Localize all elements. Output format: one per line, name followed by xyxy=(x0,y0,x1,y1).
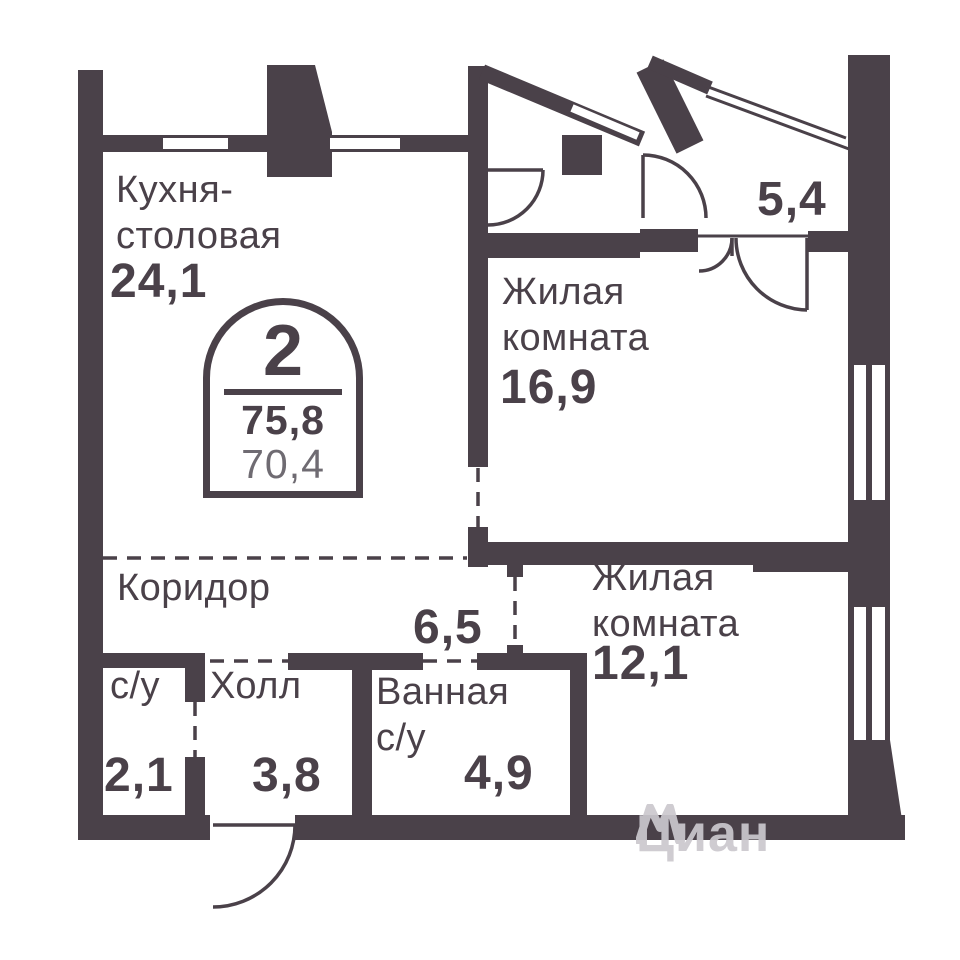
wall-bottom-left xyxy=(78,815,210,840)
room-label-corridor: Коридор xyxy=(117,566,271,612)
wall-balcony-sill-mid xyxy=(640,229,698,252)
wall-divider-upper xyxy=(468,66,488,467)
window-living1-a xyxy=(854,365,866,500)
shaft-box xyxy=(562,135,602,175)
wall-balcony-sill-left xyxy=(468,233,640,258)
wall-mid-step xyxy=(753,542,850,572)
wall-stub-upper xyxy=(507,562,523,577)
room-area-hall: 3,8 xyxy=(252,748,322,803)
room-label-wc: с/у xyxy=(110,664,160,710)
balcony54-door-large-arc xyxy=(736,238,807,310)
window-balcony54-inner xyxy=(706,96,849,149)
diagonal-walls xyxy=(482,62,849,149)
wall-bath-right xyxy=(570,670,587,815)
wall-divider-lower xyxy=(468,527,488,567)
window-balcony54-outer xyxy=(703,85,846,138)
room-area-kitchen: 24,1 xyxy=(110,254,207,309)
entry-door-arc xyxy=(213,825,295,907)
window-kitchen-2 xyxy=(330,138,400,149)
stamp-living-area: 70,4 xyxy=(241,443,325,486)
wall-bath-top-left xyxy=(288,653,423,670)
room-area-balcony: 5,4 xyxy=(757,172,827,227)
balcony-left-door-arc xyxy=(488,170,543,225)
floor-plan-drawing xyxy=(0,0,960,960)
wall-wc-partition-up xyxy=(185,668,205,702)
room-area-wc: 2,1 xyxy=(104,748,174,803)
wall-hall-bath xyxy=(352,668,372,815)
floor-plan: Кухня- столовая 24,1 Жилая комната 16,9 … xyxy=(0,0,960,960)
window-living2-b xyxy=(872,607,885,740)
window-living1-b xyxy=(872,365,885,500)
balcony54-door-small-arc xyxy=(699,238,732,271)
room-area-living2: 12,1 xyxy=(592,636,689,691)
stamp-divider xyxy=(224,389,342,395)
window-kitchen-1 xyxy=(163,138,228,149)
room-label-kitchen: Кухня- столовая xyxy=(116,168,281,259)
wall-bottom-right xyxy=(295,815,905,840)
watermark: Циан xyxy=(636,804,770,864)
cian-logo-icon xyxy=(636,804,682,844)
balcony-door-arc xyxy=(643,155,706,218)
wall-wc-partition-down xyxy=(185,757,205,815)
room-label-living1: Жилая комната xyxy=(502,270,649,361)
wall-bath-top-right xyxy=(477,653,587,670)
vent-shaft xyxy=(267,65,332,177)
room-label-living2: Жилая комната xyxy=(592,556,739,647)
room-label-hall: Холл xyxy=(210,664,302,710)
room-area-bathroom: 4,9 xyxy=(464,746,534,801)
room-area-corridor: 6,5 xyxy=(413,600,483,655)
apartment-stamp: 2 75,8 70,4 xyxy=(203,298,363,498)
wall-left xyxy=(78,70,103,840)
room-area-living1: 16,9 xyxy=(500,360,597,415)
stamp-total-area: 75,8 xyxy=(241,398,325,443)
stamp-rooms-count: 2 xyxy=(263,315,303,387)
window-living2-a xyxy=(854,607,866,740)
wall-balcony-sill-right xyxy=(808,231,852,252)
